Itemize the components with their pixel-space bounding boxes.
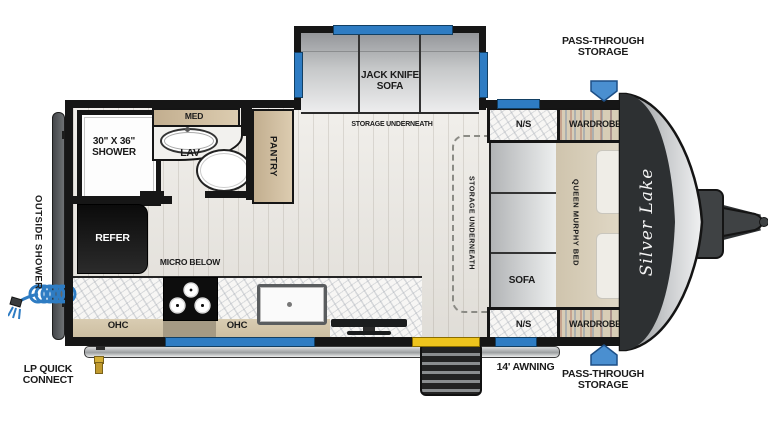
nightstand-top: N/S (487, 107, 560, 143)
ohc-right-label: OHC (215, 321, 259, 331)
kitchen-sink (257, 284, 327, 325)
pantry-wall (246, 108, 252, 200)
ohc-strip-under-stove (163, 319, 216, 337)
brand-logo: Silver Lake (637, 168, 657, 277)
lp-quick-connect-label: LP QUICK CONNECT (8, 364, 88, 387)
burner (169, 297, 186, 314)
lav-faucet (185, 127, 190, 132)
burner (194, 297, 211, 314)
wall-rear (65, 100, 73, 345)
bath-wall-bottom-right (205, 191, 248, 198)
entry-door (412, 337, 480, 347)
window-bottom-kitchen (165, 337, 315, 347)
murphy-sofa: SOFA (489, 136, 559, 312)
refrigerator: REFER (77, 204, 148, 274)
tv-base (347, 331, 391, 335)
storage-underneath-top-label: STORAGE UNDERNEATH (342, 121, 442, 129)
slideout-sofa: JACK KNIFE SOFA (301, 33, 479, 114)
slide-window-left (294, 52, 303, 98)
storage-underneath-side-label: STORAGE UNDERNEATH (463, 148, 479, 298)
window-bottom-front (495, 337, 537, 347)
sofa-label: SOFA (491, 276, 553, 287)
coupler-tip (760, 218, 768, 227)
lav-label: LAV (168, 148, 212, 159)
window-top-front (497, 99, 540, 109)
arrow-down-icon (590, 80, 618, 102)
pass-through-bottom-label: PASS-THROUGH STORAGE (548, 369, 658, 392)
slide-window-right (479, 52, 488, 98)
awning-label: 14' AWNING (488, 362, 563, 373)
burner (183, 282, 199, 298)
awning-tube (84, 346, 560, 358)
ohc-left-label: OHC (96, 321, 140, 331)
cooktop (163, 277, 218, 321)
pantry: PANTRY (252, 109, 294, 204)
entry-steps (420, 345, 482, 396)
jack-knife-sofa-label: JACK KNIFE SOFA (330, 71, 450, 93)
ns-top-label: N/S (516, 120, 531, 130)
pass-through-top-label: PASS-THROUGH STORAGE (548, 36, 658, 59)
slide-window-top (333, 25, 453, 35)
lp-fitting-stem (95, 362, 103, 374)
med-label: MED (154, 112, 234, 121)
coupler (723, 208, 763, 236)
tv (331, 319, 407, 327)
micro-below-label: MICRO BELOW (152, 258, 228, 267)
ns-bottom-label: N/S (516, 320, 531, 330)
arrow-up-icon (590, 344, 618, 366)
wall-top-left (65, 100, 296, 108)
wall-bottom (65, 337, 640, 346)
sofa-back-seam (301, 51, 479, 52)
refer-label: REFER (95, 233, 130, 244)
outside-shower-label: OUTSIDE SHOWER (29, 192, 47, 292)
floorplan-canvas: 30" X 36" SHOWER MED LAV PANTRY REFER OH… (0, 0, 768, 422)
sink-drain (287, 302, 292, 307)
shower-label: 30" X 36" SHOWER (82, 137, 146, 159)
pantry-label: PANTRY (268, 136, 279, 177)
murphy-bed-label: QUEEN MURPHY BED (568, 150, 584, 295)
refer-shelf (73, 196, 172, 204)
front-cap-and-hitch: Silver Lake (610, 88, 768, 358)
